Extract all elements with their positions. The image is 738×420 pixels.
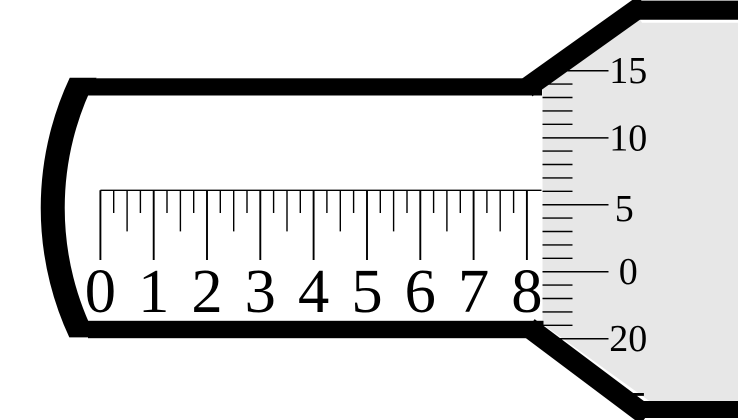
svg-text:20: 20 [609, 318, 647, 360]
svg-text:7: 7 [458, 256, 489, 326]
svg-text:3: 3 [245, 256, 276, 326]
svg-text:5: 5 [615, 188, 634, 230]
svg-text:10: 10 [609, 117, 647, 159]
svg-text:0: 0 [85, 256, 116, 326]
svg-text:4: 4 [298, 256, 329, 326]
svg-text:6: 6 [405, 256, 436, 326]
svg-text:0: 0 [619, 251, 638, 293]
svg-text:8: 8 [511, 256, 542, 326]
svg-text:5: 5 [351, 256, 382, 326]
svg-text:2: 2 [191, 256, 222, 326]
svg-text:15: 15 [609, 50, 647, 92]
svg-text:1: 1 [138, 256, 169, 326]
